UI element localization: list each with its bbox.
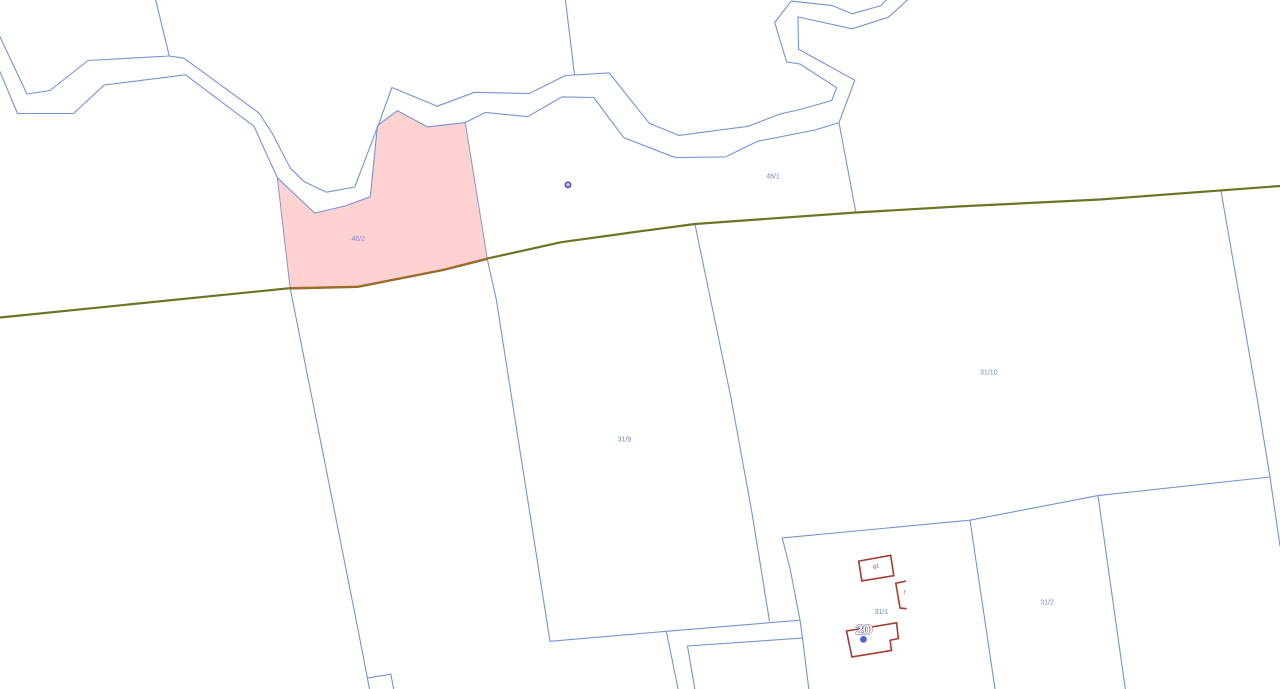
svg-text:31/2: 31/2 [1040, 600, 1054, 607]
svg-text:46/2: 46/2 [351, 236, 365, 243]
svg-text:46/1: 46/1 [766, 174, 780, 181]
svg-text:31/1: 31/1 [874, 609, 888, 616]
svg-text:g1: g1 [872, 563, 879, 570]
svg-text:20: 20 [855, 622, 870, 637]
svg-text:31/9: 31/9 [618, 436, 632, 443]
svg-text:31/10: 31/10 [980, 369, 998, 376]
